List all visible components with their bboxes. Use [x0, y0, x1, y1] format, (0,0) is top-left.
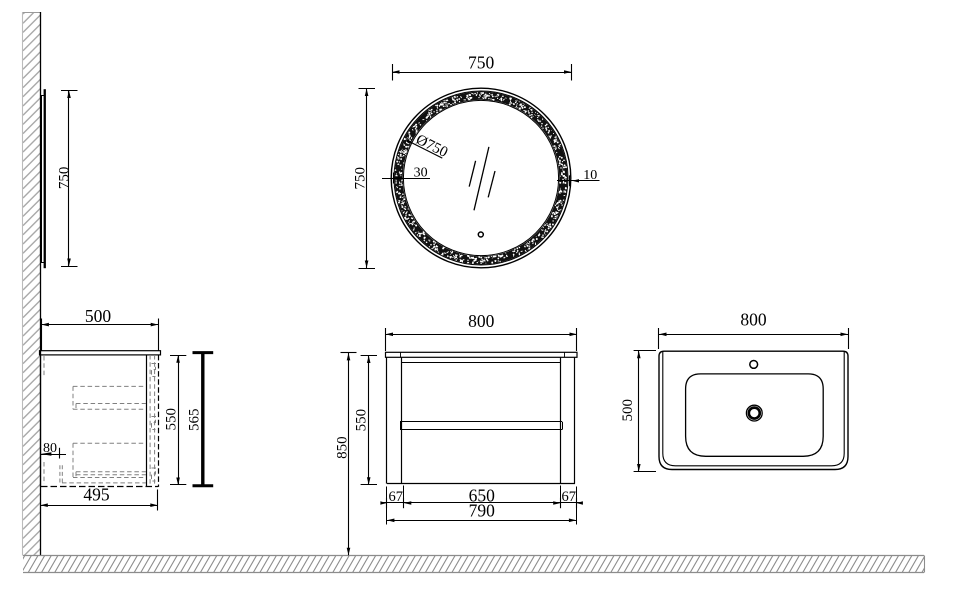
- svg-text:500: 500: [620, 399, 636, 422]
- svg-text:800: 800: [468, 311, 495, 331]
- svg-text:550: 550: [163, 408, 179, 431]
- svg-text:565: 565: [186, 408, 202, 431]
- svg-text:500: 500: [85, 306, 112, 326]
- svg-text:790: 790: [469, 500, 496, 520]
- svg-text:67: 67: [562, 489, 577, 505]
- svg-text:80: 80: [43, 441, 57, 456]
- svg-text:750: 750: [57, 167, 73, 190]
- svg-text:750: 750: [353, 167, 369, 190]
- svg-text:495: 495: [83, 485, 110, 505]
- svg-text:750: 750: [468, 52, 495, 72]
- svg-text:850: 850: [335, 436, 351, 459]
- svg-text:550: 550: [353, 409, 369, 432]
- svg-text:30: 30: [414, 166, 428, 181]
- svg-text:67: 67: [388, 489, 403, 505]
- svg-text:800: 800: [740, 310, 767, 330]
- svg-text:10: 10: [583, 168, 597, 183]
